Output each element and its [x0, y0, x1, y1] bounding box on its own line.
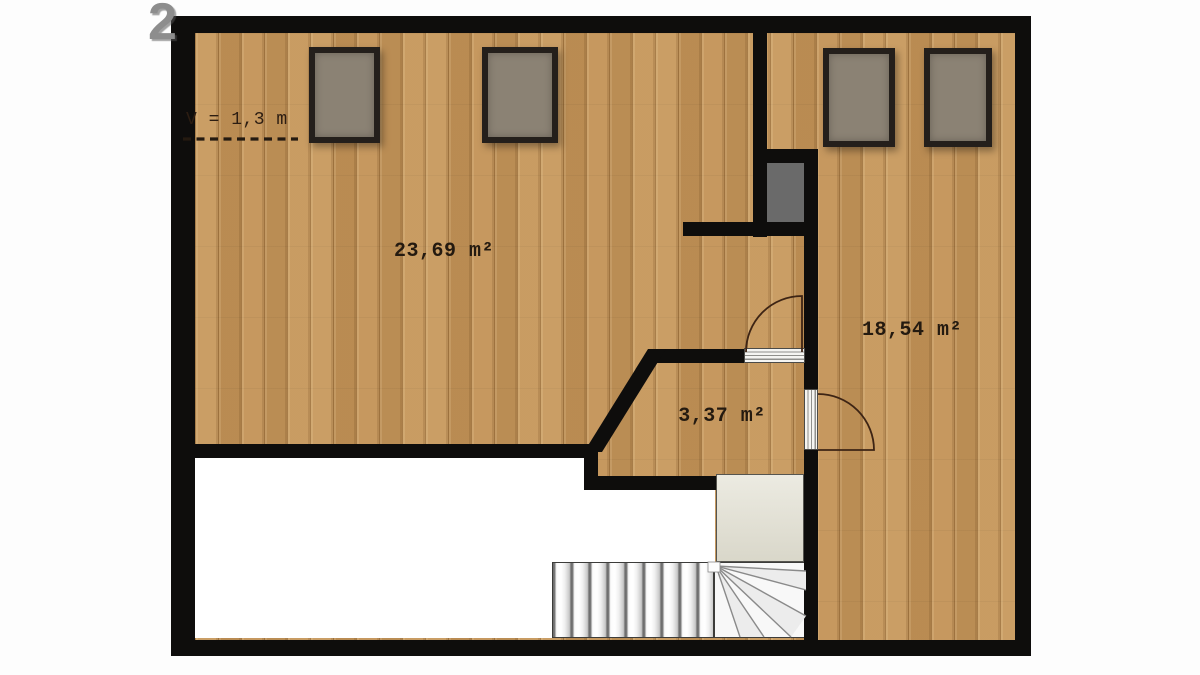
roof-window	[924, 48, 992, 147]
wall	[584, 476, 716, 490]
watermark-digit: 2	[148, 0, 177, 52]
chimney-shaft	[767, 163, 804, 222]
room-area-label-hallway: 3,37 m²	[647, 405, 797, 428]
wall	[584, 444, 598, 480]
roof-window	[823, 48, 895, 147]
wall	[171, 444, 593, 458]
low-headroom-area	[195, 458, 593, 638]
roof-window	[482, 47, 558, 143]
staircase-straight-flight	[552, 562, 714, 638]
door-threshold	[744, 348, 805, 363]
stair-landing	[716, 474, 804, 562]
room-area-label-right: 18,54 m²	[827, 319, 997, 342]
floor-plan: V = 1,3 m 23,69 m² 18,54 m² 3,37 m² 2	[0, 0, 1200, 675]
wall	[804, 149, 818, 389]
height-note-label: V = 1,3 m	[186, 110, 386, 130]
wall	[804, 450, 818, 640]
door-threshold	[804, 389, 818, 450]
wall	[648, 349, 746, 363]
wall	[753, 33, 767, 237]
room-area-label-large: 23,69 m²	[359, 240, 529, 263]
staircase-winder	[714, 562, 808, 638]
wall	[683, 222, 818, 236]
